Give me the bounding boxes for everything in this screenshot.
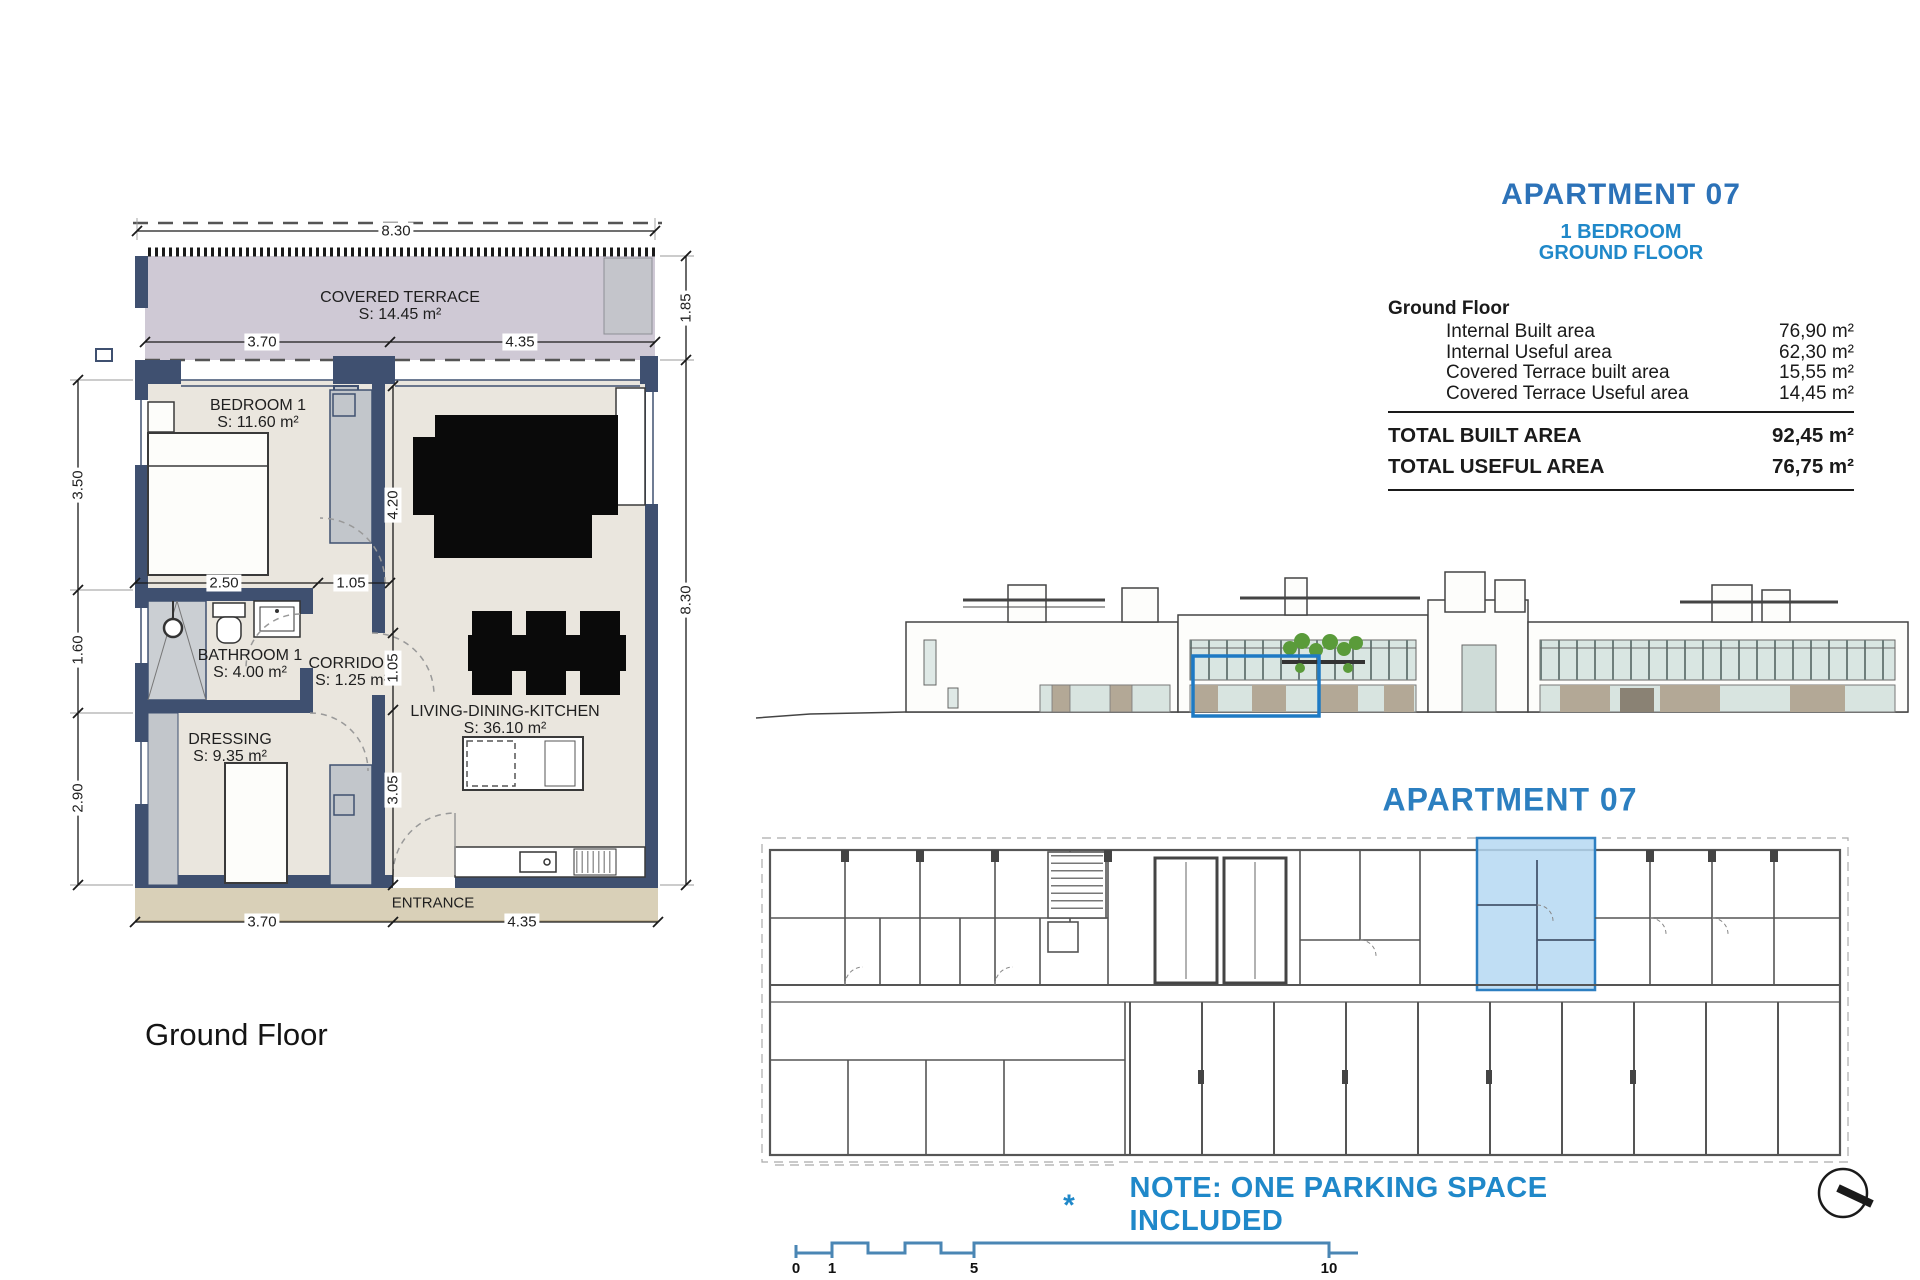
total-label: TOTAL BUILT AREA [1388, 420, 1582, 451]
row-value: 14,45 m² [1746, 384, 1854, 405]
room-label-bathroom-1: BATHROOM 1 S: 4.00 m² [198, 647, 303, 681]
note-asterisk: * [1063, 1189, 1075, 1223]
apartment-title: APARTMENT 07 [1388, 178, 1854, 212]
elevation-graphic [756, 572, 1908, 718]
row-label: Covered Terrace built area [1388, 363, 1670, 384]
room-name: BATHROOM 1 [198, 647, 303, 664]
room-name: LIVING-DINING-KITCHEN [410, 703, 599, 720]
row-value: 76,90 m² [1746, 322, 1854, 343]
row-value: 62,30 m² [1746, 343, 1854, 364]
compass-icon [1819, 1169, 1872, 1217]
entrance-label: ENTRANCE [392, 895, 475, 912]
row-label: Internal Built area [1388, 322, 1595, 343]
room-name: CORRIDOR [308, 655, 395, 672]
room-name: BEDROOM 1 [210, 397, 306, 414]
scale-label-0: 0 [792, 1260, 800, 1277]
row-label: Covered Terrace Useful area [1388, 384, 1689, 405]
dim-bedroom-width: 2.50 [206, 575, 241, 592]
room-area: S: 4.00 m² [198, 664, 303, 681]
room-name: DRESSING [188, 731, 272, 748]
dim-bottom-right: 4.35 [504, 914, 539, 931]
dim-terrace-left: 3.70 [244, 334, 279, 351]
info-panel: APARTMENT 07 1 BEDROOM GROUND FLOOR Grou… [1388, 178, 1854, 498]
scale-label-10: 10 [1321, 1260, 1338, 1277]
dim-corridor-vertical: 1.05 [385, 650, 402, 685]
plan-caption: Ground Floor [145, 1017, 328, 1053]
room-area: S: 9.35 m² [188, 748, 272, 765]
room-area: S: 1.25 m² [308, 672, 395, 689]
apartment-subtitle-floor: GROUND FLOOR [1388, 243, 1854, 264]
scale-bar-graphic [796, 1243, 1358, 1258]
dim-terrace-right: 4.35 [502, 334, 537, 351]
scale-label-1: 1 [828, 1260, 836, 1277]
table-row: Covered Terrace Useful area 14,45 m² [1388, 384, 1854, 405]
room-area: S: 11.60 m² [210, 414, 306, 431]
dim-bottom-left: 3.70 [244, 914, 279, 931]
room-label-corridor: CORRIDOR S: 1.25 m² [308, 655, 395, 689]
room-area: S: 14.45 m² [320, 306, 480, 323]
dim-lower-vertical: 3.05 [385, 772, 402, 807]
apartment-subtitle-bedrooms: 1 BEDROOM [1388, 222, 1854, 243]
room-area: S: 36.10 m² [410, 720, 599, 737]
floor-plan-graphic [70, 218, 694, 927]
table-row: Covered Terrace built area 15,55 m² [1388, 363, 1854, 384]
page: { "plan": { "caption": "Ground Floor", "… [0, 0, 1920, 1280]
table-total-row: TOTAL BUILT AREA 92,45 m² [1388, 420, 1854, 451]
table-total-row: TOTAL USEFUL AREA 76,75 m² [1388, 451, 1854, 482]
total-value: 92,45 m² [1746, 420, 1854, 451]
dim-left-top: 3.50 [70, 467, 87, 502]
dim-right-terrace: 1.85 [678, 290, 695, 325]
room-label-covered-terrace: COVERED TERRACE S: 14.45 m² [320, 289, 480, 323]
total-label: TOTAL USEFUL AREA [1388, 451, 1604, 482]
room-name: COVERED TERRACE [320, 289, 480, 306]
table-row: Internal Useful area 62,30 m² [1388, 343, 1854, 364]
note-text: NOTE: ONE PARKING SPACE INCLUDED [1130, 1172, 1657, 1238]
area-table: Ground Floor Internal Built area 76,90 m… [1388, 298, 1854, 491]
table-row: Internal Built area 76,90 m² [1388, 322, 1854, 343]
building-plan-graphic [762, 838, 1848, 1165]
dim-left-mid: 1.60 [70, 632, 87, 667]
table-divider [1388, 489, 1854, 491]
room-label-living-dining-kitchen: LIVING-DINING-KITCHEN S: 36.10 m² [410, 703, 599, 737]
dim-total-width: 8.30 [378, 223, 413, 240]
site-plan-title: APARTMENT 07 [1383, 782, 1638, 819]
scale-label-5: 5 [970, 1260, 978, 1277]
room-label-dressing: DRESSING S: 9.35 m² [188, 731, 272, 765]
row-value: 15,55 m² [1746, 363, 1854, 384]
dim-right-total: 8.30 [678, 582, 695, 617]
table-divider [1388, 411, 1854, 413]
table-section-header: Ground Floor [1388, 298, 1854, 320]
total-value: 76,75 m² [1746, 451, 1854, 482]
row-label: Internal Useful area [1388, 343, 1612, 364]
dim-living-vertical: 4.20 [385, 487, 402, 522]
dim-left-bottom: 2.90 [70, 780, 87, 815]
plan-apartment-highlight [1477, 838, 1595, 990]
dim-corridor-top: 1.05 [333, 575, 368, 592]
room-label-bedroom-1: BEDROOM 1 S: 11.60 m² [210, 397, 306, 431]
